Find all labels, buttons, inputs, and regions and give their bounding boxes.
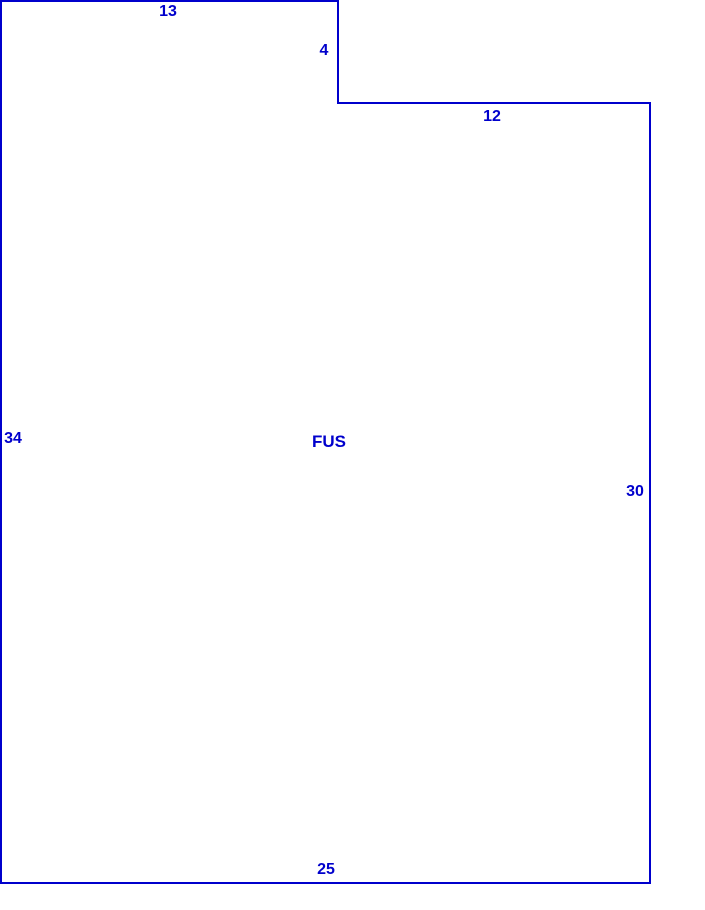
dimension-right: 30 bbox=[626, 483, 644, 501]
dimension-top: 13 bbox=[159, 3, 177, 21]
floor-plan-sketch: 13 4 12 34 FUS 30 25 bbox=[0, 0, 705, 910]
dimension-step: 4 bbox=[320, 42, 329, 60]
sketch-drawing bbox=[0, 0, 705, 910]
dimension-left: 34 bbox=[4, 430, 22, 448]
area-label: FUS bbox=[312, 433, 346, 452]
dimension-bottom: 25 bbox=[317, 861, 335, 879]
dimension-upper-top: 12 bbox=[483, 108, 501, 126]
